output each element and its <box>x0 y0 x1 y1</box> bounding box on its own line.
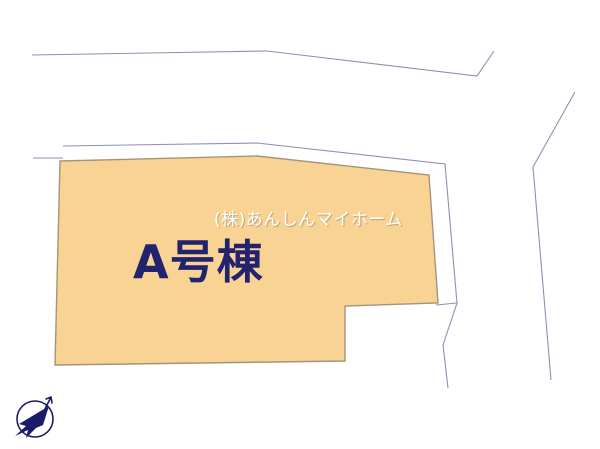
road-line-right <box>533 92 575 380</box>
watermark: (株)あんしんマイホーム <box>214 211 403 230</box>
compass-needle <box>15 406 49 438</box>
parcel-boundary-stub <box>436 303 457 305</box>
site-plan-canvas: (株)あんしんマイホーム A号棟 <box>0 0 600 449</box>
plot-a-label: A号棟 <box>133 239 264 285</box>
road-line-top <box>32 51 494 76</box>
compass-north-icon <box>9 391 59 445</box>
